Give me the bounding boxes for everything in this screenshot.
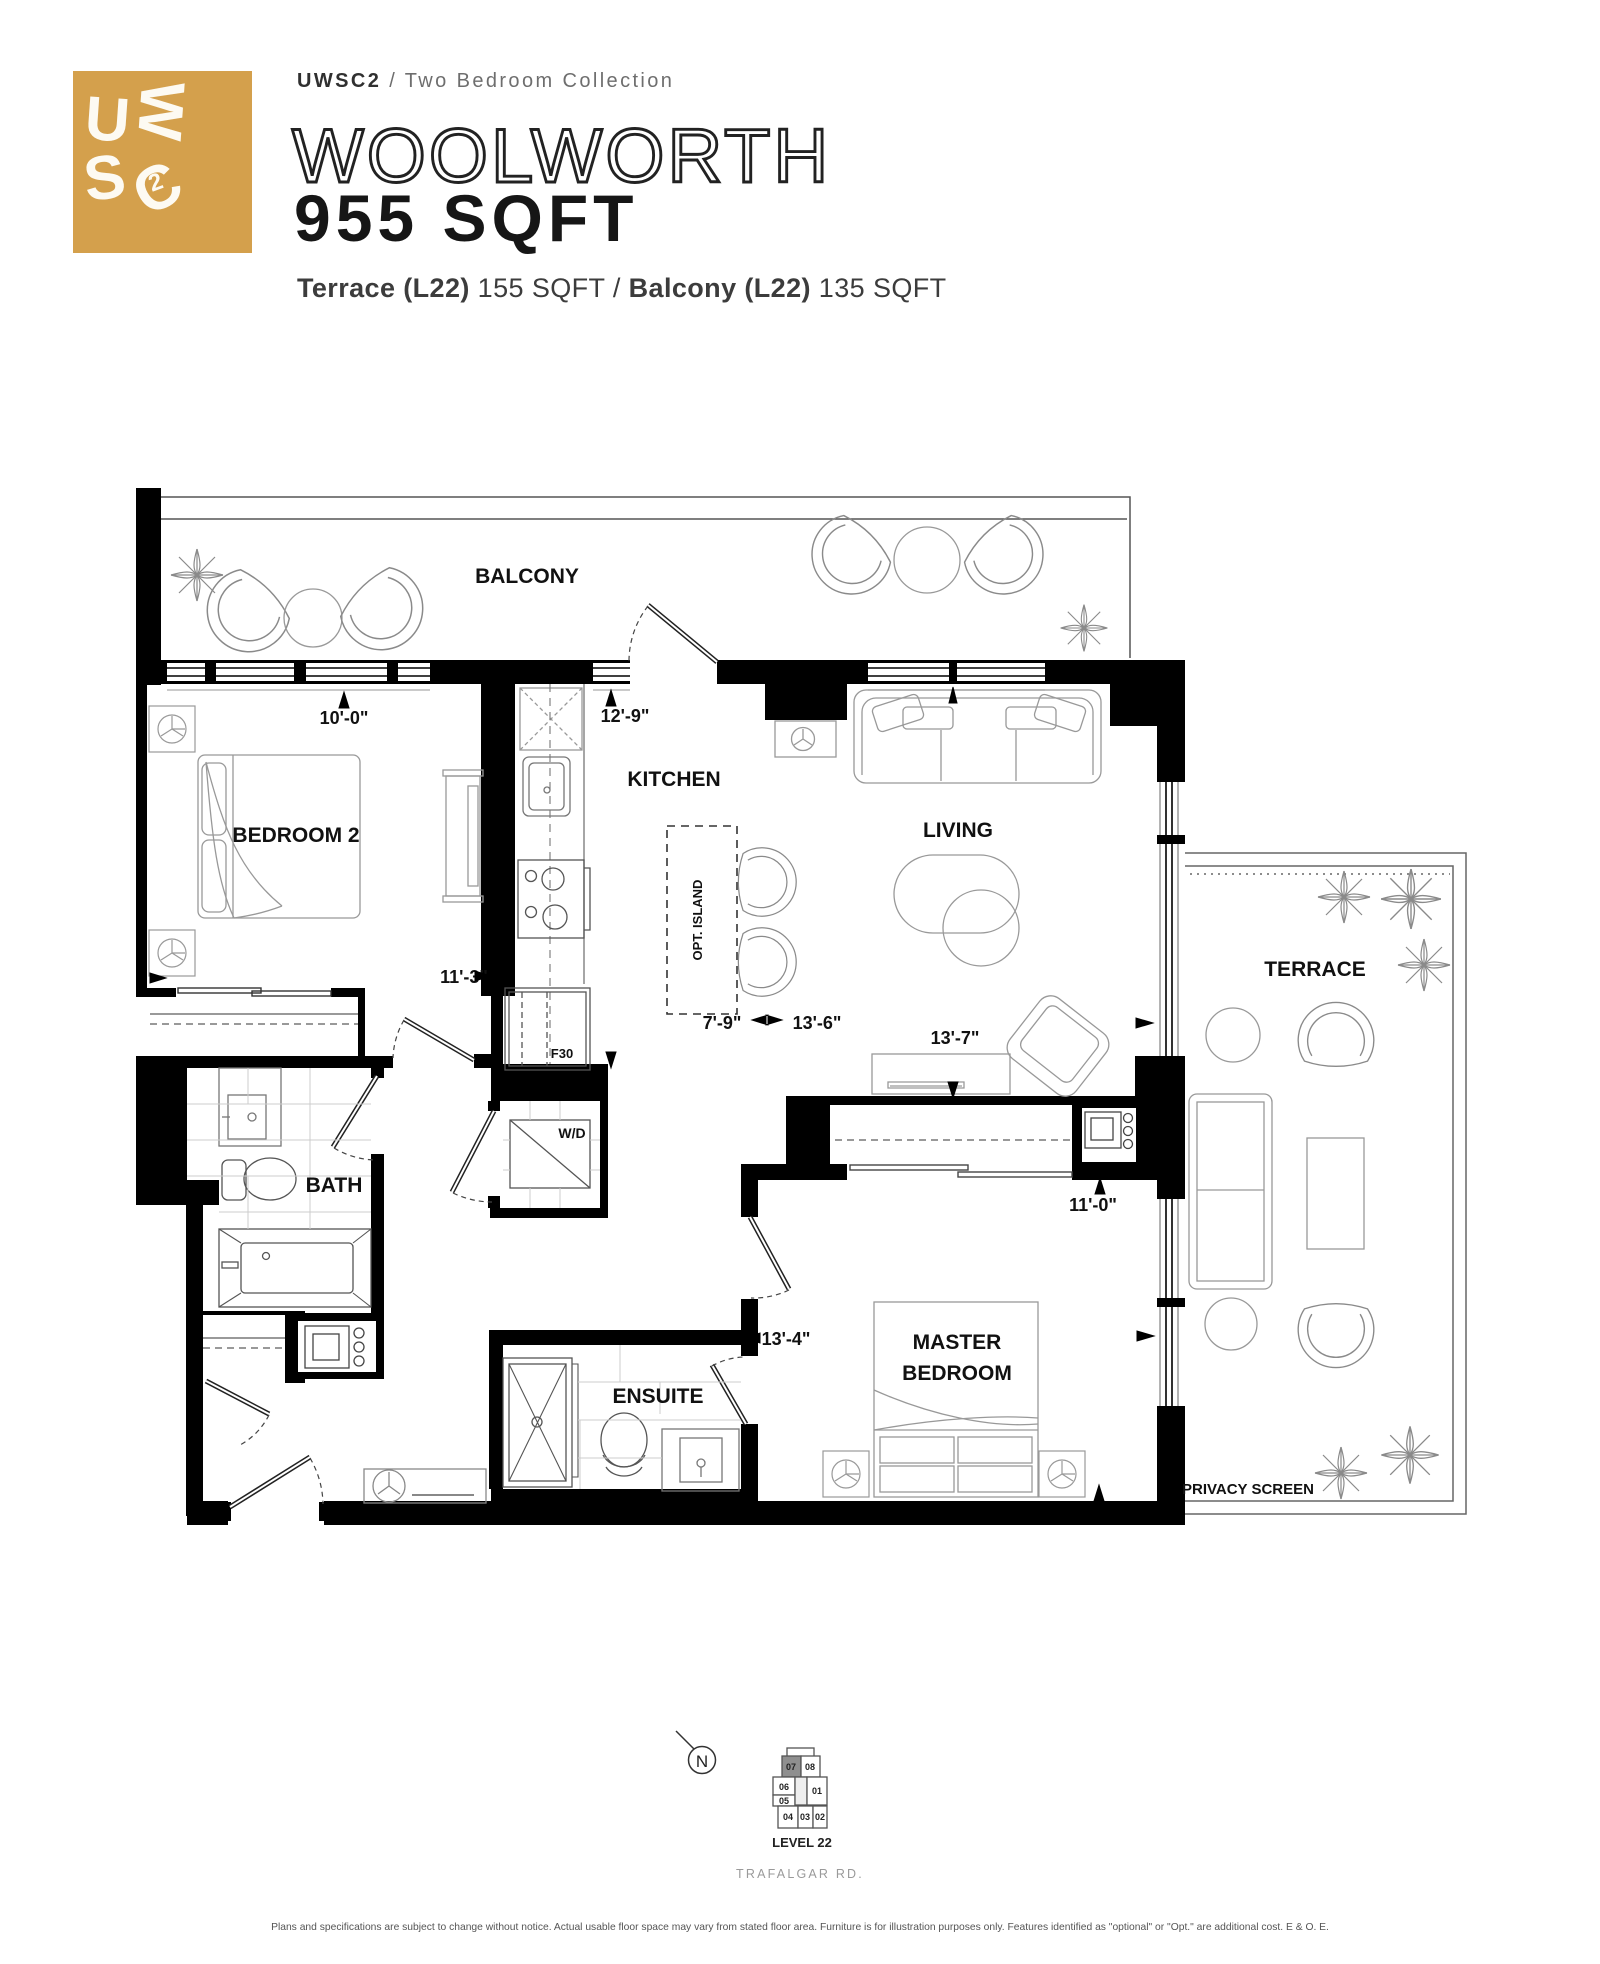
svg-text:13'-6": 13'-6" — [793, 1013, 842, 1033]
svg-text:MASTER: MASTER — [913, 1331, 1002, 1354]
svg-text:TERRACE: TERRACE — [1264, 958, 1366, 981]
svg-text:11'-0": 11'-0" — [1069, 1195, 1117, 1215]
svg-text:OPT. ISLAND: OPT. ISLAND — [690, 880, 705, 961]
svg-text:LIVING: LIVING — [923, 819, 993, 842]
svg-text:BEDROOM 2: BEDROOM 2 — [232, 824, 359, 847]
svg-text:Plans and specifications are s: Plans and specifications are subject to … — [271, 1922, 1329, 1933]
svg-text:N: N — [696, 1752, 708, 1771]
svg-text:04: 04 — [783, 1812, 793, 1822]
svg-text:03: 03 — [800, 1812, 810, 1822]
svg-text:01: 01 — [812, 1786, 822, 1796]
svg-text:08: 08 — [805, 1762, 815, 1772]
svg-text:07: 07 — [786, 1762, 796, 1772]
svg-text:06: 06 — [779, 1782, 789, 1792]
svg-text:BATH: BATH — [306, 1174, 363, 1197]
svg-text:12'-9": 12'-9" — [601, 706, 650, 726]
svg-text:10'-0": 10'-0" — [320, 708, 369, 728]
svg-text:7'-9": 7'-9" — [703, 1013, 742, 1033]
svg-text:BEDROOM: BEDROOM — [902, 1362, 1012, 1385]
svg-text:LEVEL 22: LEVEL 22 — [772, 1835, 832, 1850]
svg-text:13'-4": 13'-4" — [762, 1329, 811, 1349]
svg-text:ENSUITE: ENSUITE — [612, 1385, 703, 1408]
svg-text:F30: F30 — [551, 1046, 573, 1061]
svg-text:BALCONY: BALCONY — [475, 565, 579, 588]
svg-text:KITCHEN: KITCHEN — [627, 768, 720, 791]
svg-text:PRIVACY SCREEN: PRIVACY SCREEN — [1182, 1481, 1314, 1498]
svg-text:TRAFALGAR RD.: TRAFALGAR RD. — [736, 1867, 864, 1881]
svg-text:W/D: W/D — [558, 1125, 585, 1141]
svg-text:02: 02 — [815, 1812, 825, 1822]
svg-text:05: 05 — [779, 1796, 789, 1806]
svg-text:13'-7": 13'-7" — [931, 1028, 980, 1048]
